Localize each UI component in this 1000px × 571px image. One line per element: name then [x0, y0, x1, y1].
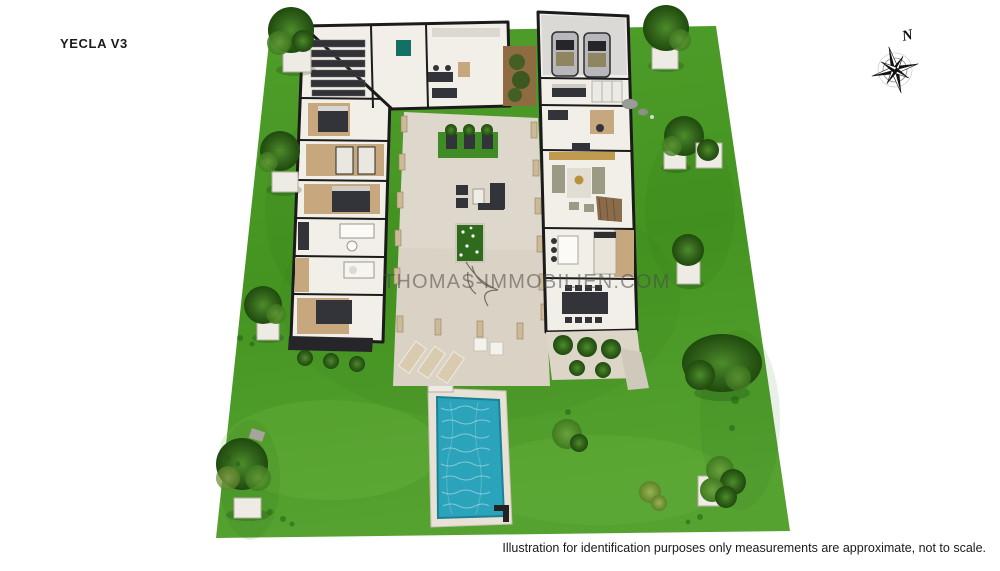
car: [552, 32, 578, 76]
compass-rose-icon: N: [855, 24, 939, 108]
compass-north-label: N: [900, 27, 916, 45]
pool-water: [437, 397, 504, 518]
car: [584, 33, 610, 77]
top-wing: [303, 22, 510, 109]
swimming-pool: [428, 383, 512, 527]
floor-plan-page: YECLA V3 THOMAS-IMMOBILIEN.COM Illustrat…: [0, 0, 1000, 571]
flower-planter: [456, 224, 484, 262]
disclaimer-text: Illustration for identification purposes…: [502, 541, 986, 555]
tree: [672, 234, 704, 289]
page-title: YECLA V3: [60, 36, 128, 51]
central-courtyard: [393, 112, 550, 386]
watermark: THOMAS-IMMOBILIEN.COM: [383, 271, 670, 294]
garden-path: [503, 46, 536, 106]
teal-cabinet: [396, 40, 411, 56]
potted-plants: [445, 124, 493, 149]
garage: [541, 15, 627, 77]
planter-bush: [696, 139, 722, 168]
